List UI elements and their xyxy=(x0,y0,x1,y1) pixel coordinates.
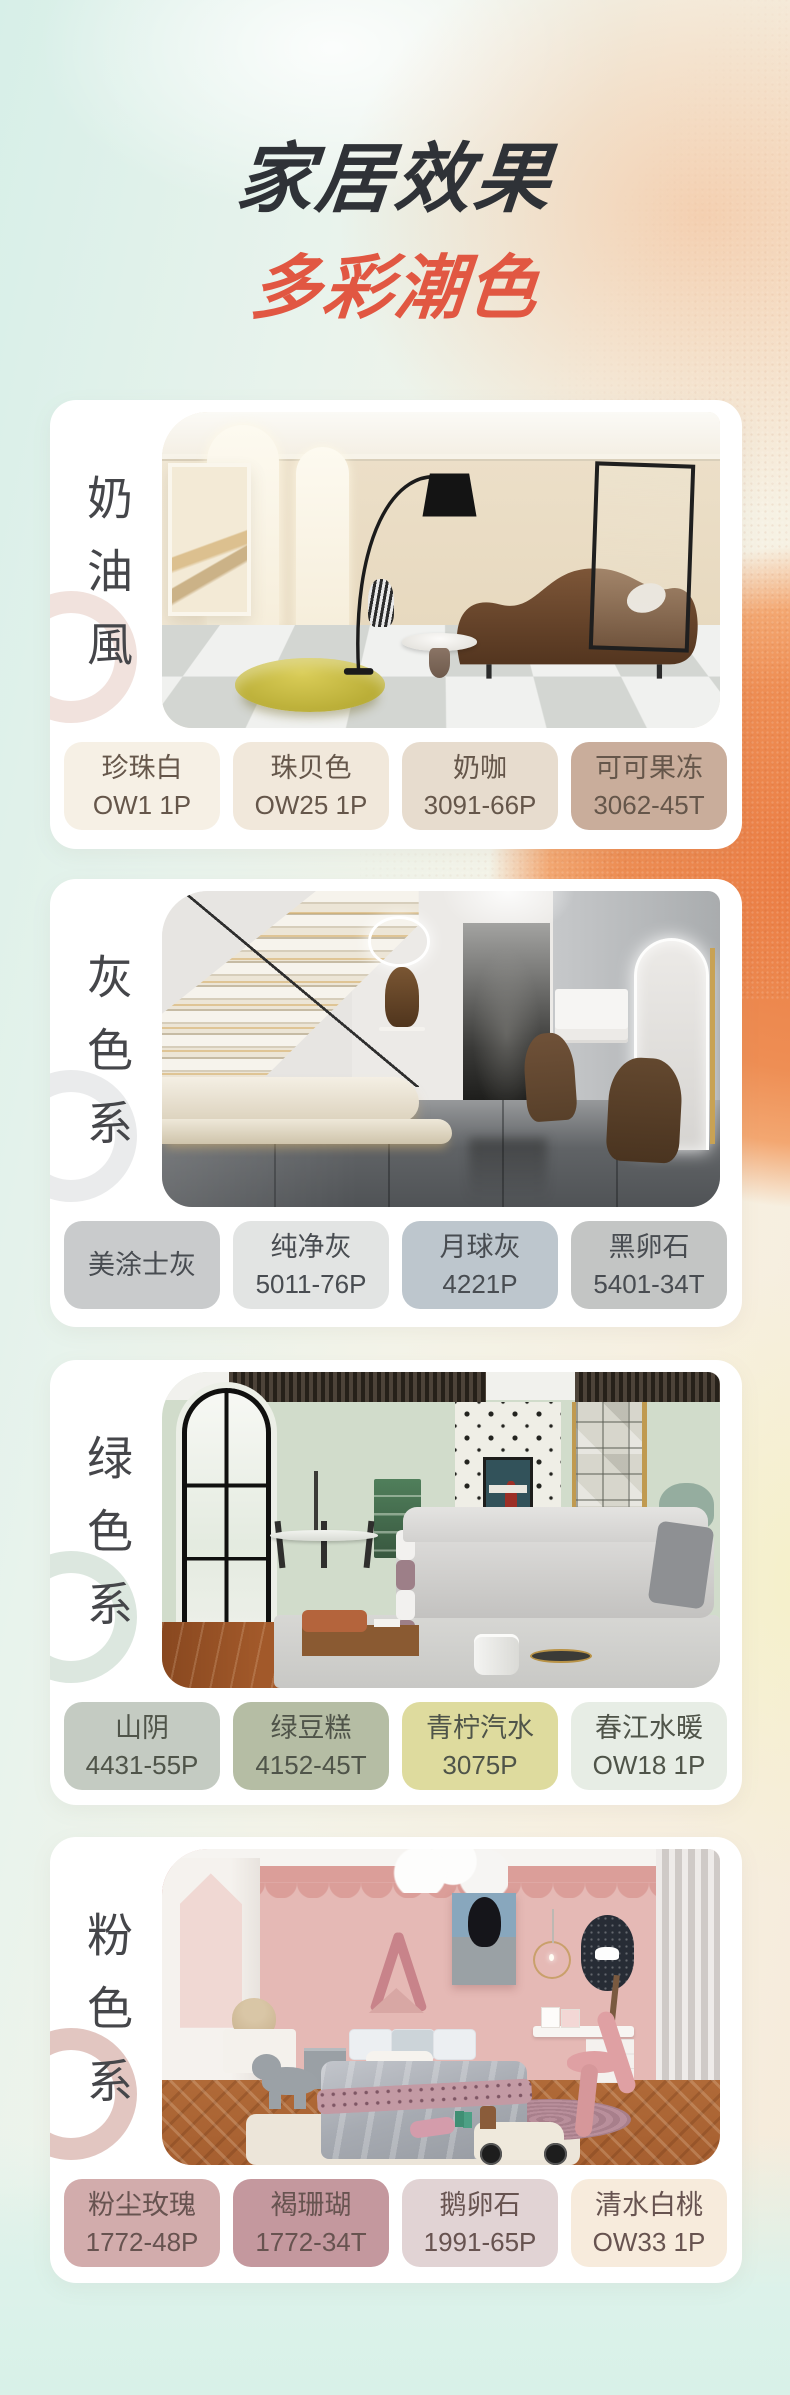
cloud-pendant-lamp xyxy=(391,1849,508,1893)
dining-chair xyxy=(363,1521,374,1568)
brown-salon-chair-front xyxy=(606,1057,684,1165)
style-card-gray: 灰色系 美涂士灰 纯净灰 5011-7 xyxy=(50,879,742,1327)
color-swatch: 可可果冻 3062-45T xyxy=(571,742,727,830)
wood-slat-ceiling-left xyxy=(229,1372,486,1402)
floor-reflection xyxy=(469,1138,547,1201)
color-swatch: 黑卵石 5401-34T xyxy=(571,1221,727,1309)
bed-pillow xyxy=(433,2029,477,2059)
swatch-code: 5401-34T xyxy=(593,1266,704,1302)
swatch-name: 珍珠白 xyxy=(102,749,183,787)
swatch-code: 3091-66P xyxy=(424,787,537,823)
dining-set xyxy=(262,1498,385,1574)
gray-throw xyxy=(648,1520,715,1609)
swatch-name: 奶咖 xyxy=(453,749,507,787)
color-swatch: 褐珊瑚 1772-34T xyxy=(233,2179,389,2267)
swatch-name: 春江水暖 xyxy=(595,1709,703,1747)
wall-art xyxy=(168,463,251,616)
color-swatch: 清水白桃 OW33 1P xyxy=(571,2179,727,2267)
swatch-code: 1772-48P xyxy=(86,2224,199,2260)
style-label-pink: 粉色系 xyxy=(80,1911,130,2130)
swatch-name: 鹅卵石 xyxy=(440,2186,521,2224)
swatch-name: 美涂士灰 xyxy=(88,1246,196,1284)
pony-plush xyxy=(262,2067,318,2095)
color-swatch: 月球灰 4221P xyxy=(402,1221,558,1309)
swatch-code: OW1 1P xyxy=(93,787,191,823)
pink-room-photo xyxy=(162,1849,720,2165)
color-swatch: 绿豆糕 4152-45T xyxy=(233,1702,389,1790)
style-label-cream: 奶油風 xyxy=(80,474,130,693)
green-room-photo xyxy=(162,1372,720,1688)
toy-car-wheel xyxy=(544,2143,566,2165)
color-swatch: 奶咖 3091-66P xyxy=(402,742,558,830)
zebra-toy xyxy=(368,579,394,626)
swatch-name: 青柠汽水 xyxy=(426,1709,534,1747)
cream-room-photo xyxy=(162,412,720,728)
color-swatch: 珠贝色 OW25 1P xyxy=(233,742,389,830)
swatch-code: 3075P xyxy=(442,1747,517,1783)
branch-vase xyxy=(314,1471,318,1532)
swatch-code: 4431-55P xyxy=(86,1747,199,1783)
dining-table xyxy=(270,1530,378,1541)
page-subtitle: 多彩潮色 xyxy=(0,250,790,327)
swatch-code: OW33 1P xyxy=(593,2224,706,2260)
black-tray-table xyxy=(530,1649,591,1663)
color-swatch: 山阴 4431-55P xyxy=(64,1702,220,1790)
page-title: 家居效果 xyxy=(0,138,790,222)
swatch-row: 粉尘玫瑰 1772-48P 褐珊瑚 1772-34T 鹅卵石 1991-65P … xyxy=(64,2179,727,2267)
wood-slat-ceiling-right xyxy=(575,1372,720,1402)
swatch-name: 月球灰 xyxy=(440,1228,521,1266)
leaning-black-frame xyxy=(588,461,695,652)
swatch-name: 山阴 xyxy=(115,1709,169,1747)
swatch-name: 褐珊瑚 xyxy=(271,2186,352,2224)
curved-marble-step xyxy=(162,1077,419,1121)
dining-chair xyxy=(321,1521,327,1568)
color-swatch: 粉尘玫瑰 1772-48P xyxy=(64,2179,220,2267)
marble-side-table xyxy=(474,1634,519,1675)
color-swatch: 美涂士灰 xyxy=(64,1221,220,1309)
swatch-row: 山阴 4431-55P 绿豆糕 4152-45T 青柠汽水 3075P 春江水暖… xyxy=(64,1702,727,1790)
color-swatch: 纯净灰 5011-76P xyxy=(233,1221,389,1309)
swatch-name: 可可果冻 xyxy=(595,749,703,787)
swatch-code: 1991-65P xyxy=(424,2224,537,2260)
bear-statue xyxy=(385,967,418,1027)
white-cabinet xyxy=(555,989,628,1043)
portrait-canvas xyxy=(452,1893,516,1985)
swatch-code: 4221P xyxy=(442,1266,517,1302)
sofa-pillow xyxy=(396,1560,415,1590)
swatch-code: 1772-34T xyxy=(255,2224,366,2260)
round-coffee-table xyxy=(402,633,477,650)
arched-window xyxy=(182,1388,271,1650)
color-swatch: 鹅卵石 1991-65P xyxy=(402,2179,558,2267)
swatch-code: OW25 1P xyxy=(255,787,368,823)
gray-room-photo xyxy=(162,891,720,1207)
wood-bench xyxy=(302,1625,419,1657)
color-swatch: 春江水暖 OW18 1P xyxy=(571,1702,727,1790)
style-label-gray: 灰色系 xyxy=(80,953,130,1172)
color-swatch: 珍珠白 OW1 1P xyxy=(64,742,220,830)
green-bottles xyxy=(455,2111,464,2127)
desk-photo-frame xyxy=(561,2009,580,2028)
desk-photo-frame xyxy=(541,2007,560,2028)
style-card-green: 绿色系 xyxy=(50,1360,742,1805)
swatch-name: 珠贝色 xyxy=(271,749,352,787)
style-card-cream: 奶油風 xyxy=(50,400,742,849)
color-swatch: 青柠汽水 3075P xyxy=(402,1702,558,1790)
swatch-name: 黑卵石 xyxy=(609,1228,690,1266)
swatch-name: 纯净灰 xyxy=(271,1228,352,1266)
swatch-name: 清水白桃 xyxy=(595,2186,703,2224)
sofa-pillow xyxy=(396,1530,415,1560)
swatch-name: 粉尘玫瑰 xyxy=(88,2186,196,2224)
swatch-row: 珍珠白 OW1 1P 珠贝色 OW25 1P 奶咖 3091-66P 可可果冻 … xyxy=(64,742,727,830)
halo-pendant-light xyxy=(368,916,430,966)
swatch-code: 3062-45T xyxy=(593,787,704,823)
swatch-code: 4152-45T xyxy=(255,1747,366,1783)
swatch-code: 5011-76P xyxy=(256,1266,367,1302)
swatch-name: 绿豆糕 xyxy=(271,1709,352,1747)
curved-marble-step-lower xyxy=(162,1119,452,1144)
style-card-pink: 粉色系 xyxy=(50,1837,742,2283)
dining-chair xyxy=(275,1521,286,1568)
style-label-green: 绿色系 xyxy=(80,1434,130,1653)
sofa-pillow xyxy=(396,1590,415,1620)
hoop-lamp xyxy=(533,1941,571,1979)
poster-page: 家居效果 多彩潮色 奶油風 xyxy=(0,0,790,2395)
pegboard-oval xyxy=(581,1915,634,1991)
swatch-code: OW18 1P xyxy=(593,1747,706,1783)
swatch-row: 美涂士灰 纯净灰 5011-76P 月球灰 4221P 黑卵石 5401-34T xyxy=(64,1221,727,1309)
